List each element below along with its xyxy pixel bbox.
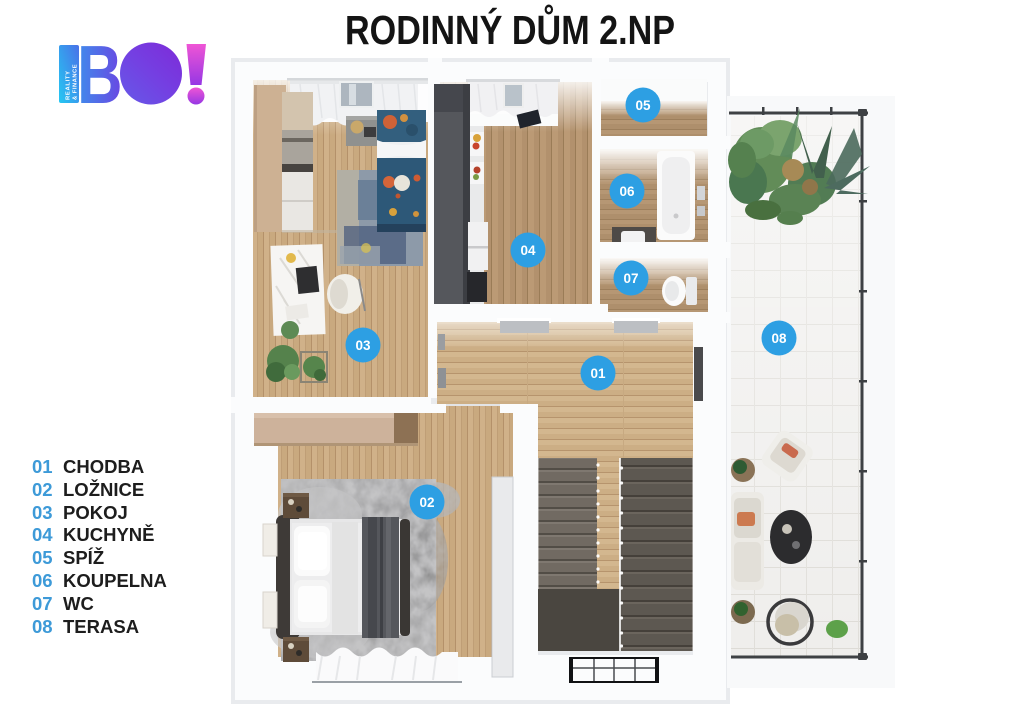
svg-text:02: 02 [419,495,434,510]
svg-text:TERASA: TERASA [63,616,139,637]
svg-text:KUCHYNĚ: KUCHYNĚ [63,524,154,545]
svg-text:REALITY: REALITY [66,70,72,100]
svg-text:05: 05 [32,547,53,568]
svg-text:KOUPELNA: KOUPELNA [63,570,167,591]
svg-text:05: 05 [635,98,651,113]
svg-text:04: 04 [32,524,53,545]
svg-text:08: 08 [771,331,787,346]
svg-text:B: B [77,28,123,121]
svg-text:08: 08 [32,616,53,637]
svg-text:03: 03 [32,502,53,523]
svg-text:06: 06 [619,184,635,199]
svg-text:SPÍŽ: SPÍŽ [63,547,104,568]
svg-text:04: 04 [520,243,536,258]
svg-text:02: 02 [32,479,53,500]
svg-text:01: 01 [32,456,53,477]
svg-text:03: 03 [355,338,371,353]
svg-text:POKOJ: POKOJ [63,502,128,523]
svg-text:WC: WC [63,593,94,614]
svg-text:CHODBA: CHODBA [63,456,144,477]
svg-text:06: 06 [32,570,53,591]
svg-text:RODINNÝ DŮM 2.NP: RODINNÝ DŮM 2.NP [345,4,675,53]
svg-text:07: 07 [32,593,53,614]
svg-text:01: 01 [590,366,606,381]
svg-text:LOŽNICE: LOŽNICE [63,479,144,500]
svg-text:07: 07 [623,271,638,286]
